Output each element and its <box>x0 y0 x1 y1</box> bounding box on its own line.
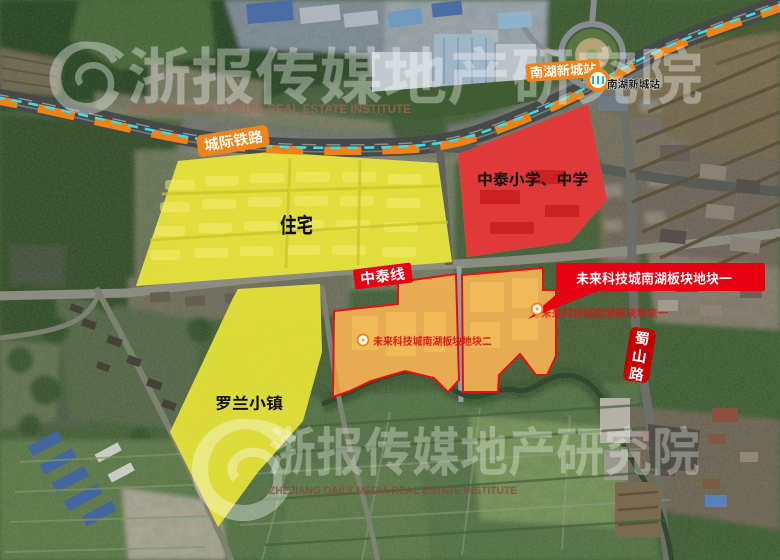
svg-text:ZHEJIANG DAILY MEDIA REAL ESTA: ZHEJIANG DAILY MEDIA REAL ESTATE INSTITU… <box>269 485 517 497</box>
svg-text:ZHEJIANG DAILY MEDIA REAL ESTA: ZHEJIANG DAILY MEDIA REAL ESTATE INSTITU… <box>127 104 411 116</box>
